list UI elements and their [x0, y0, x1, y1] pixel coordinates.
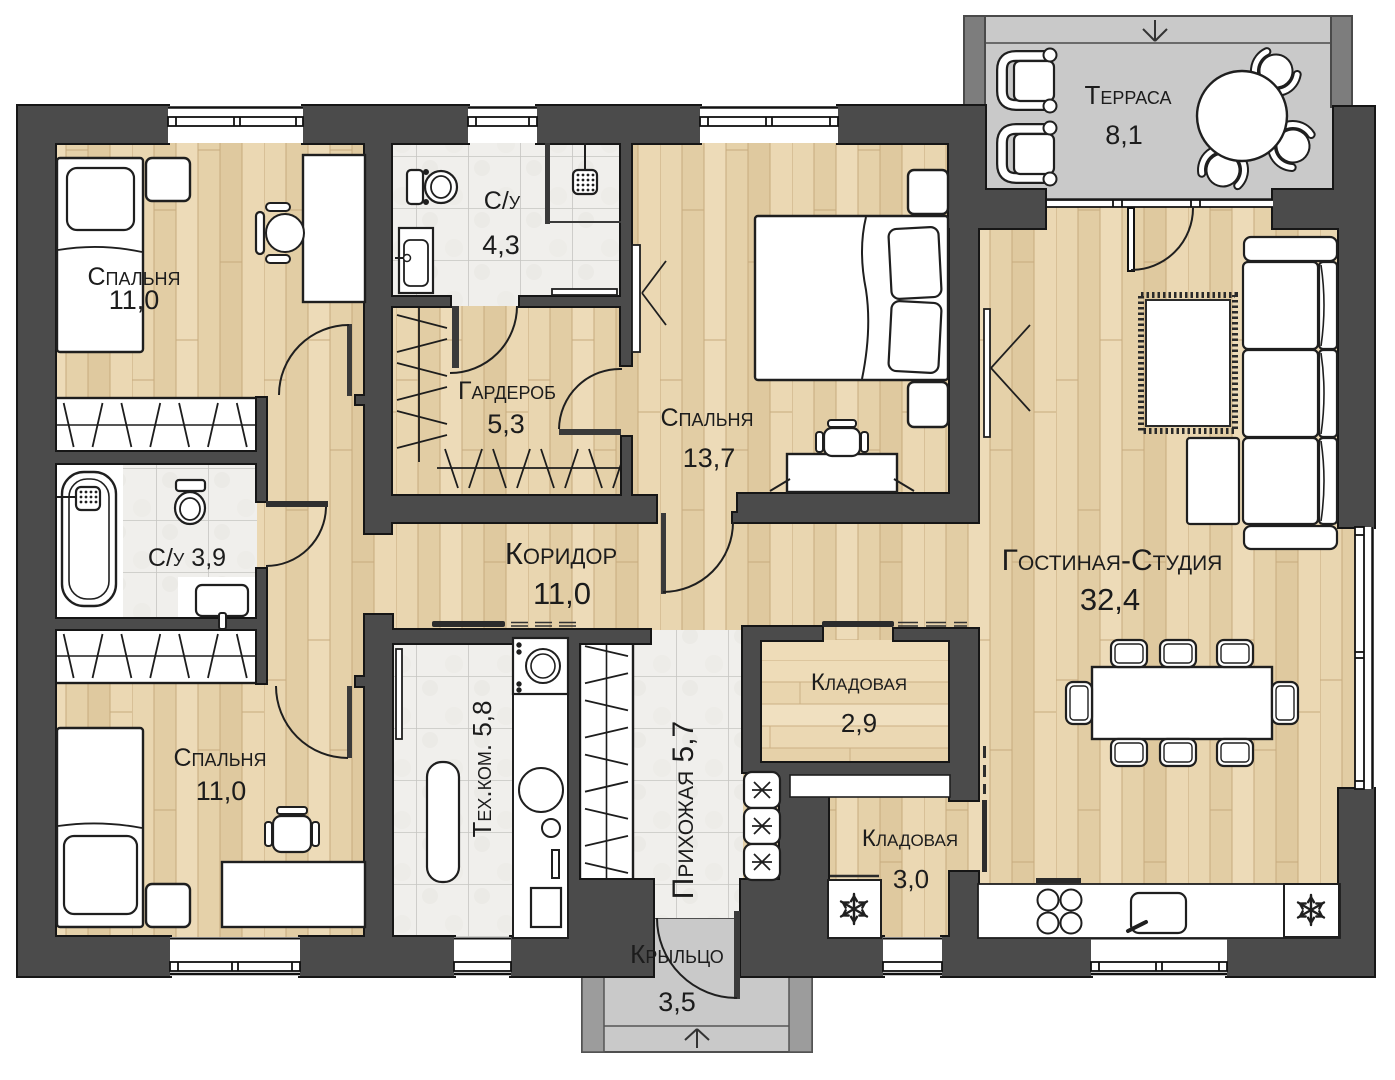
svg-text:Гостиная-Студия: Гостиная-Студия — [1002, 544, 1223, 577]
svg-text:5,3: 5,3 — [487, 409, 525, 439]
svg-text:Тех.ком. 5,8: Тех.ком. 5,8 — [467, 701, 497, 838]
svg-text:Крыльцо: Крыльцо — [630, 939, 724, 969]
svg-text:Терраса: Терраса — [1085, 80, 1172, 110]
svg-text:Коридор: Коридор — [505, 536, 617, 571]
svg-text:32,4: 32,4 — [1080, 582, 1140, 617]
svg-text:4,3: 4,3 — [482, 230, 520, 260]
svg-text:Кладовая: Кладовая — [811, 669, 907, 696]
svg-text:3,5: 3,5 — [658, 987, 696, 1017]
svg-text:С/у: С/у — [484, 187, 521, 215]
svg-text:Кладовая: Кладовая — [862, 825, 958, 852]
svg-text:Спальня: Спальня — [173, 744, 266, 772]
svg-text:Гардероб: Гардероб — [458, 377, 556, 405]
svg-text:13,7: 13,7 — [683, 443, 736, 473]
svg-text:Прихожая 5,7: Прихожая 5,7 — [667, 721, 700, 899]
svg-text:3,0: 3,0 — [893, 864, 929, 894]
svg-text:2,9: 2,9 — [841, 708, 877, 738]
svg-text:11,0: 11,0 — [109, 285, 160, 315]
svg-text:11,0: 11,0 — [533, 576, 591, 611]
svg-text:Спальня: Спальня — [660, 404, 753, 432]
svg-text:11,0: 11,0 — [196, 776, 247, 806]
svg-text:С/у 3,9: С/у 3,9 — [148, 544, 226, 572]
svg-text:8,1: 8,1 — [1105, 120, 1143, 150]
